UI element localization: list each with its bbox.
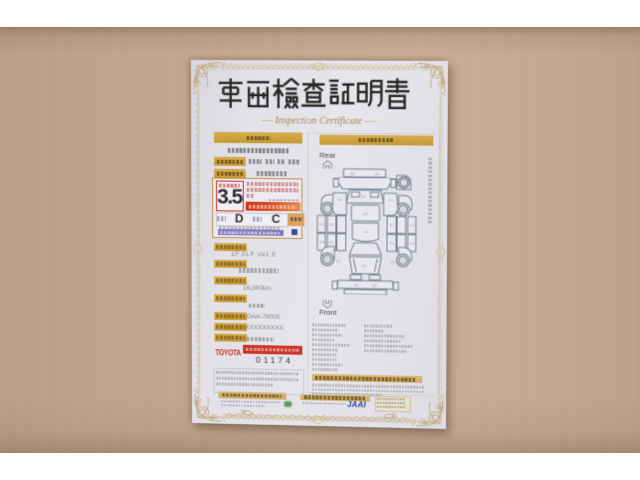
svg-text:W1: W1 (319, 240, 324, 244)
svg-text:A1: A1 (336, 259, 340, 263)
svg-text:A1: A1 (389, 241, 393, 245)
svg-text:A1: A1 (390, 260, 394, 264)
svg-text:A1: A1 (375, 172, 379, 176)
svg-text:A2: A2 (329, 223, 333, 227)
svg-text:A1: A1 (363, 230, 367, 234)
svg-text:B2: B2 (351, 172, 355, 176)
svg-text:U1: U1 (319, 222, 324, 226)
svg-text:A1: A1 (329, 240, 333, 244)
svg-text:B1: B1 (362, 195, 366, 199)
svg-text:A1: A1 (410, 242, 414, 246)
svg-text:A1: A1 (363, 212, 367, 216)
svg-text:A1: A1 (389, 198, 393, 202)
svg-text:A1: A1 (390, 223, 394, 227)
svg-text:A1: A1 (337, 198, 341, 202)
svg-text:A3: A3 (372, 284, 376, 288)
svg-text:A4: A4 (354, 284, 358, 288)
svg-text:A1: A1 (410, 224, 414, 228)
svg-text:A1: A1 (362, 264, 366, 268)
